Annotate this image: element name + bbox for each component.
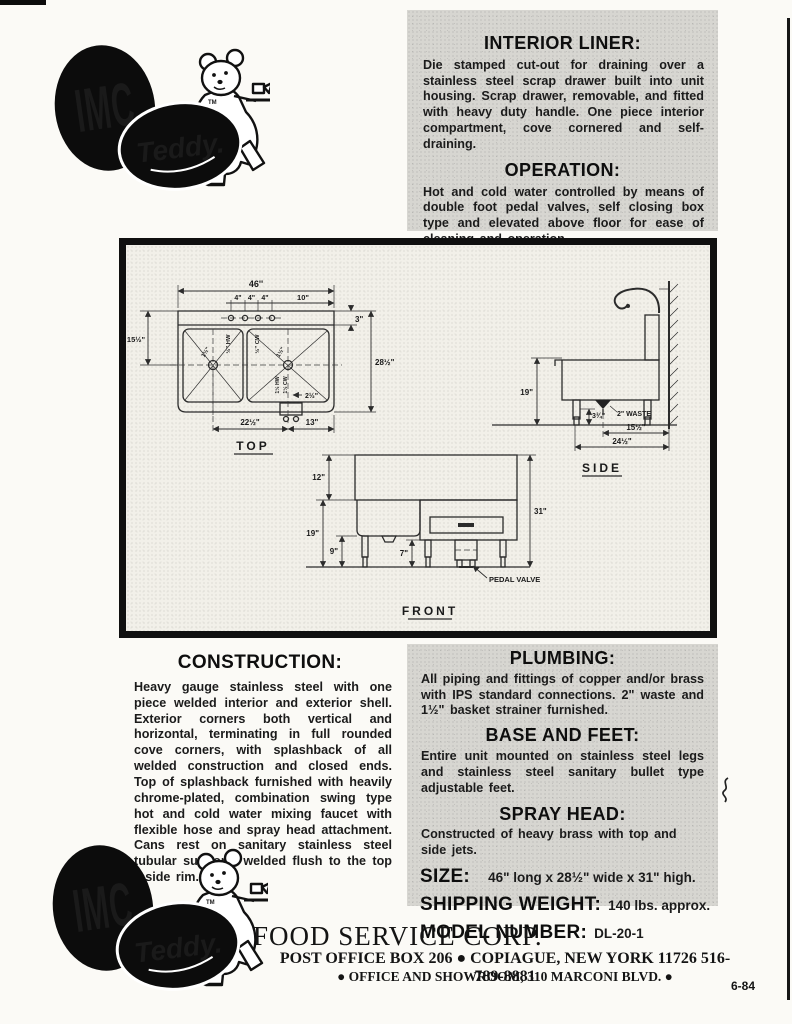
- side-view-label: SIDE: [582, 461, 622, 475]
- dimension-label: 1½": [275, 346, 287, 359]
- imc-teddy-logo-graphic: IMC Teddy. TM: [50, 40, 270, 202]
- top-view: 46'' 4" 4" 4" 10" 3" 28½" 15½": [127, 279, 395, 454]
- dimension-label: 19": [520, 388, 533, 397]
- shipping-weight-value: 140 lbs. approx.: [608, 898, 710, 913]
- dimension-label: 24½": [612, 437, 632, 446]
- scan-artifact-right-edge: [787, 18, 790, 1000]
- technical-drawing: 46'' 4" 4" 4" 10" 3" 28½" 15½": [126, 245, 710, 631]
- dimension-label: 46'': [249, 279, 263, 289]
- operation-heading: OPERATION:: [407, 160, 718, 181]
- imc-teddy-logo-bottom: IMC Teddy. TM: [48, 840, 268, 1002]
- waste-label: 2" WASTE: [617, 411, 651, 418]
- dimension-label: 1½": [200, 346, 212, 359]
- size-label: SIZE:: [420, 866, 470, 888]
- dimension-label: 1½ HW: [274, 376, 281, 393]
- dimension-label: 7": [400, 549, 408, 558]
- dimension-label: 13": [306, 418, 319, 427]
- interior-liner-body: Die stamped cut-out for draining over a …: [423, 58, 704, 153]
- dimension-label: 10": [297, 293, 309, 302]
- dimension-label: 4": [248, 295, 255, 302]
- dimension-label: 4": [234, 295, 241, 302]
- base-feet-heading: BASE AND FEET:: [407, 725, 718, 746]
- trademark-mark: TM: [206, 900, 215, 906]
- base-feet-body: Entire unit mounted on stainless steel l…: [421, 749, 704, 797]
- side-view: 19" 3¾" 2" WASTE 15½" 24½" SIDE: [492, 281, 678, 476]
- dimension-label: ½" HW: [225, 334, 232, 353]
- size-row: SIZE: 46" long x 28½" wide x 31" high.: [420, 866, 718, 888]
- dimension-label: ½" CW: [254, 334, 261, 353]
- imc-teddy-logo-top: IMC Teddy. TM: [50, 40, 270, 202]
- dimension-label: 2½": [305, 392, 318, 400]
- dimension-label: 15½": [626, 423, 646, 432]
- dimension-label: 9": [330, 547, 338, 556]
- technical-drawing-frame: 46'' 4" 4" 4" 10" 3" 28½" 15½": [119, 238, 717, 638]
- address-line-2: ● OFFICE AND SHOWROOM, 310 MARCONI BLVD.…: [275, 969, 735, 985]
- front-view: 12" 19" 9" 7" 31" PEDAL VALVE FRONT: [306, 455, 547, 619]
- dimension-label: 31": [534, 507, 547, 516]
- dimension-label: 19": [306, 529, 319, 538]
- plumbing-body: All piping and fittings of copper and/or…: [421, 672, 704, 720]
- plumbing-specs-panel: PLUMBING: All piping and fittings of cop…: [407, 644, 718, 906]
- trademark-mark: TM: [208, 100, 217, 106]
- shipping-weight-row: SHIPPING WEIGHT: 140 lbs. approx.: [420, 894, 718, 916]
- model-number-value: DL-20-1: [594, 926, 644, 941]
- spray-head-heading: SPRAY HEAD:: [407, 804, 718, 825]
- pedal-valve-label: PEDAL VALVE: [489, 575, 540, 584]
- construction-heading: CONSTRUCTION:: [120, 652, 400, 674]
- size-value: 46" long x 28½" wide x 31" high.: [488, 870, 696, 885]
- date-code: 6-84: [731, 979, 755, 993]
- dimension-label: 15½": [127, 335, 146, 344]
- scan-artifact-top-bar: [0, 0, 46, 5]
- plumbing-heading: PLUMBING:: [407, 648, 718, 669]
- spec-sheet-page: { "logo": { "imc": "IMC", "teddy": "Tedd…: [0, 0, 792, 1024]
- wall-hatching: [669, 284, 678, 425]
- dimension-label: 4": [261, 295, 268, 302]
- interior-liner-operation-panel: INTERIOR LINER: Die stamped cut-out for …: [407, 10, 718, 231]
- front-view-label: FRONT: [402, 604, 458, 618]
- top-view-label: TOP: [236, 439, 269, 453]
- company-name: FOOD SERVICE CORP.: [253, 921, 543, 952]
- imc-teddy-logo-graphic: IMC Teddy. TM: [48, 840, 268, 1002]
- shipping-weight-label: SHIPPING WEIGHT:: [420, 894, 601, 916]
- interior-liner-heading: INTERIOR LINER:: [407, 33, 718, 54]
- dimension-label: 3": [355, 315, 363, 324]
- dimension-label: 22½": [240, 418, 260, 427]
- scan-squiggle-mark: [719, 776, 733, 804]
- dimension-label: 1½ CW: [282, 376, 289, 393]
- spray-head-body: Constructed of heavy brass with top and …: [421, 827, 704, 859]
- dimension-label: 12": [312, 473, 325, 482]
- dimension-label: 28½": [375, 358, 395, 367]
